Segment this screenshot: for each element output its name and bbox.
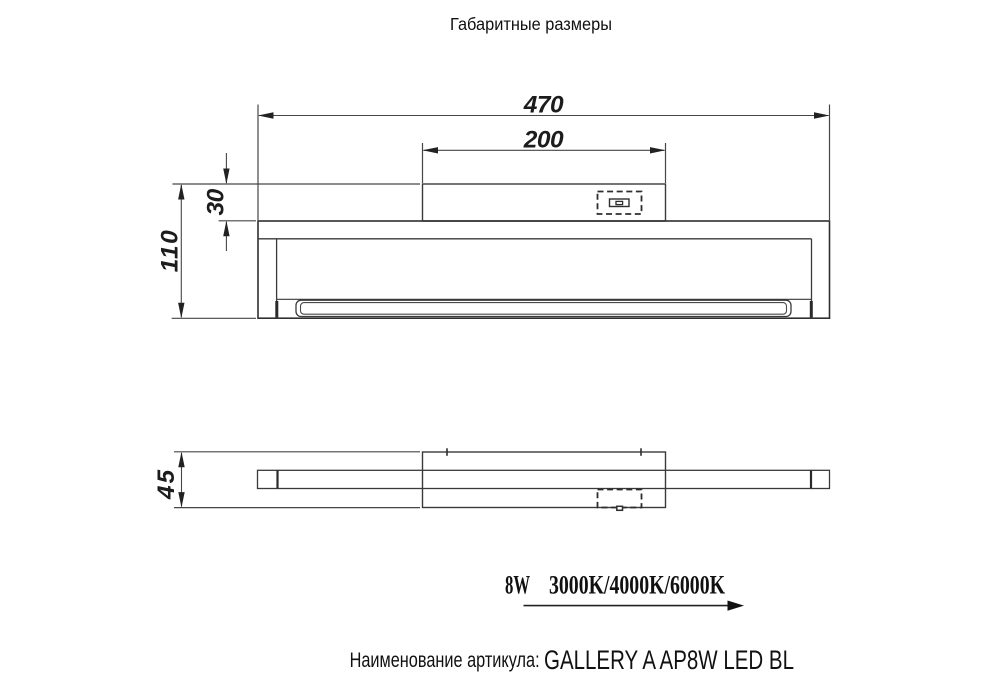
svg-text:Наименование артикула:: Наименование артикула: <box>350 649 540 672</box>
svg-text:Габаритные размеры: Габаритные размеры <box>450 14 612 34</box>
svg-text:3000K/4000K/6000K: 3000K/4000K/6000K <box>549 571 726 600</box>
svg-text:8W: 8W <box>505 571 530 600</box>
svg-text:45: 45 <box>153 468 180 500</box>
svg-text:GALLERY A AP8W LED BL: GALLERY A AP8W LED BL <box>544 645 794 675</box>
svg-text:30: 30 <box>203 188 230 215</box>
svg-text:110: 110 <box>157 229 184 273</box>
svg-text:200: 200 <box>523 127 564 154</box>
svg-text:470: 470 <box>523 92 564 119</box>
